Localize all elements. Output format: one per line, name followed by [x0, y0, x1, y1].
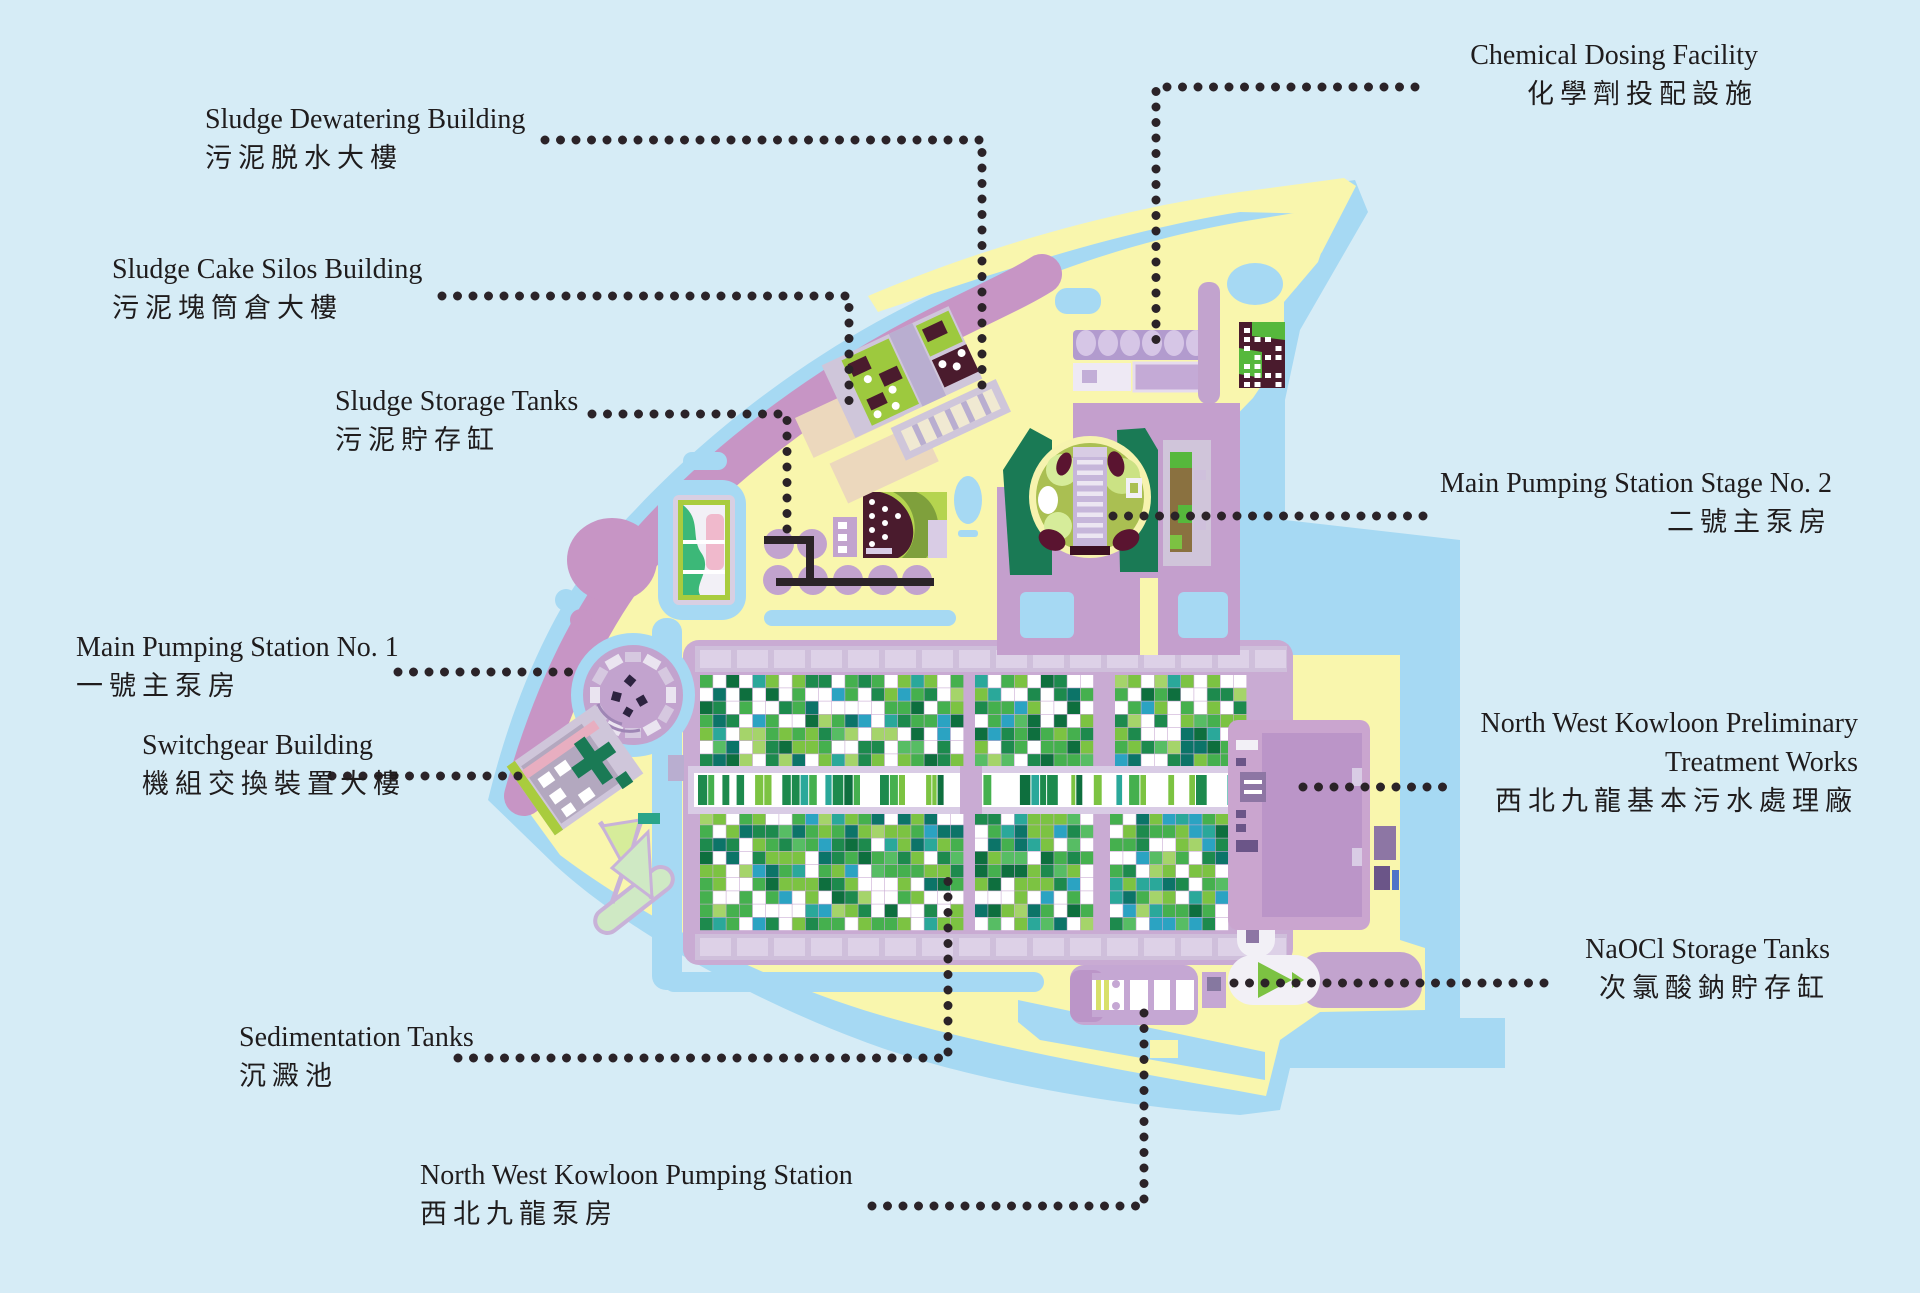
label-zh: 沉澱池 [239, 1057, 474, 1096]
label-ptw: North West Kowloon Preliminary Treatment… [1466, 704, 1858, 821]
stage2-annex [1163, 440, 1211, 566]
pond-small [683, 452, 727, 470]
small-islet [1150, 1040, 1178, 1058]
label-switchgear: Switchgear Building 機組交換裝置大樓 [142, 726, 406, 804]
label-en: NaOCl Storage Tanks [1530, 930, 1830, 969]
green-glasshouse-building [673, 495, 735, 605]
site-map: Sludge Dewatering Building 污泥脱水大樓 Sludge… [0, 0, 1920, 1293]
white-building-hatch [1246, 930, 1259, 943]
label-en: Sludge Cake Silos Building [112, 250, 422, 289]
label-zh: 污泥塊筒倉大樓 [112, 289, 422, 328]
stage2-dome [1029, 436, 1151, 558]
label-zh: 化學劑投配設施 [1408, 75, 1758, 114]
pond-ne [1055, 288, 1101, 314]
mid-canal [764, 610, 956, 626]
pipe-horizontal [764, 536, 812, 544]
label-chemical-dosing: Chemical Dosing Facility 化學劑投配設施 [1408, 36, 1758, 114]
label-en-line2: Treatment Works [1466, 743, 1858, 782]
label-zh: 西北九龍泵房 [420, 1195, 853, 1234]
digester-building [863, 492, 947, 558]
main-pumping-station-stage2 [997, 403, 1240, 655]
label-mps2: Main Pumping Station Stage No. 2 二號主泵房 [1432, 464, 1832, 542]
label-en: Main Pumping Station No. 1 [76, 628, 399, 667]
sedimentation-tanks-platform [668, 640, 1293, 965]
coast-band-dot [570, 609, 592, 631]
label-sludge-storage: Sludge Storage Tanks 污泥貯存缸 [335, 382, 578, 460]
coast-band-blob [567, 518, 657, 602]
label-en: North West Kowloon Pumping Station [420, 1156, 853, 1195]
label-zh: 二號主泵房 [1432, 503, 1832, 542]
label-en: Switchgear Building [142, 726, 406, 765]
label-zh: 污泥脱水大樓 [205, 139, 525, 178]
south-canal [664, 972, 1044, 992]
small-lavender-building [833, 517, 857, 557]
bottom-walkway [695, 934, 1287, 960]
label-zh: 機組交換裝置大樓 [142, 765, 406, 804]
pool-west [1020, 592, 1074, 638]
label-zh: 一號主泵房 [76, 667, 399, 706]
ptw-annex [1374, 826, 1396, 860]
label-mps1: Main Pumping Station No. 1 一號主泵房 [76, 628, 399, 706]
coast-notch [1227, 263, 1283, 305]
label-en: Sludge Storage Tanks [335, 382, 578, 421]
ne-road [1198, 282, 1220, 404]
pool-east [1178, 592, 1228, 638]
label-en-line1: North West Kowloon Preliminary [1466, 704, 1858, 743]
label-sedimentation: Sedimentation Tanks 沉澱池 [239, 1018, 474, 1096]
pond-sliver [958, 530, 978, 537]
dark-grid-building [1239, 322, 1285, 388]
label-en: Sedimentation Tanks [239, 1018, 474, 1057]
label-zh: 西北九龍基本污水處理廠 [1466, 782, 1858, 821]
label-en: Chemical Dosing Facility [1408, 36, 1758, 75]
pond-oval [954, 476, 982, 524]
label-sludge-dewatering: Sludge Dewatering Building 污泥脱水大樓 [205, 100, 525, 178]
pipe-vertical [806, 536, 814, 584]
pipe-long [776, 578, 934, 586]
label-sludge-cake-silos: Sludge Cake Silos Building 污泥塊筒倉大樓 [112, 250, 422, 328]
label-zh: 次氯酸鈉貯存缸 [1530, 969, 1830, 1008]
central-channel [688, 766, 1292, 814]
label-naocl: NaOCl Storage Tanks 次氯酸鈉貯存缸 [1530, 930, 1830, 1008]
label-en: Sludge Dewatering Building [205, 100, 525, 139]
pond-west [555, 589, 577, 611]
label-nwkps: North West Kowloon Pumping Station 西北九龍泵… [420, 1156, 853, 1234]
label-zh: 污泥貯存缸 [335, 421, 578, 460]
label-en: Main Pumping Station Stage No. 2 [1432, 464, 1832, 503]
